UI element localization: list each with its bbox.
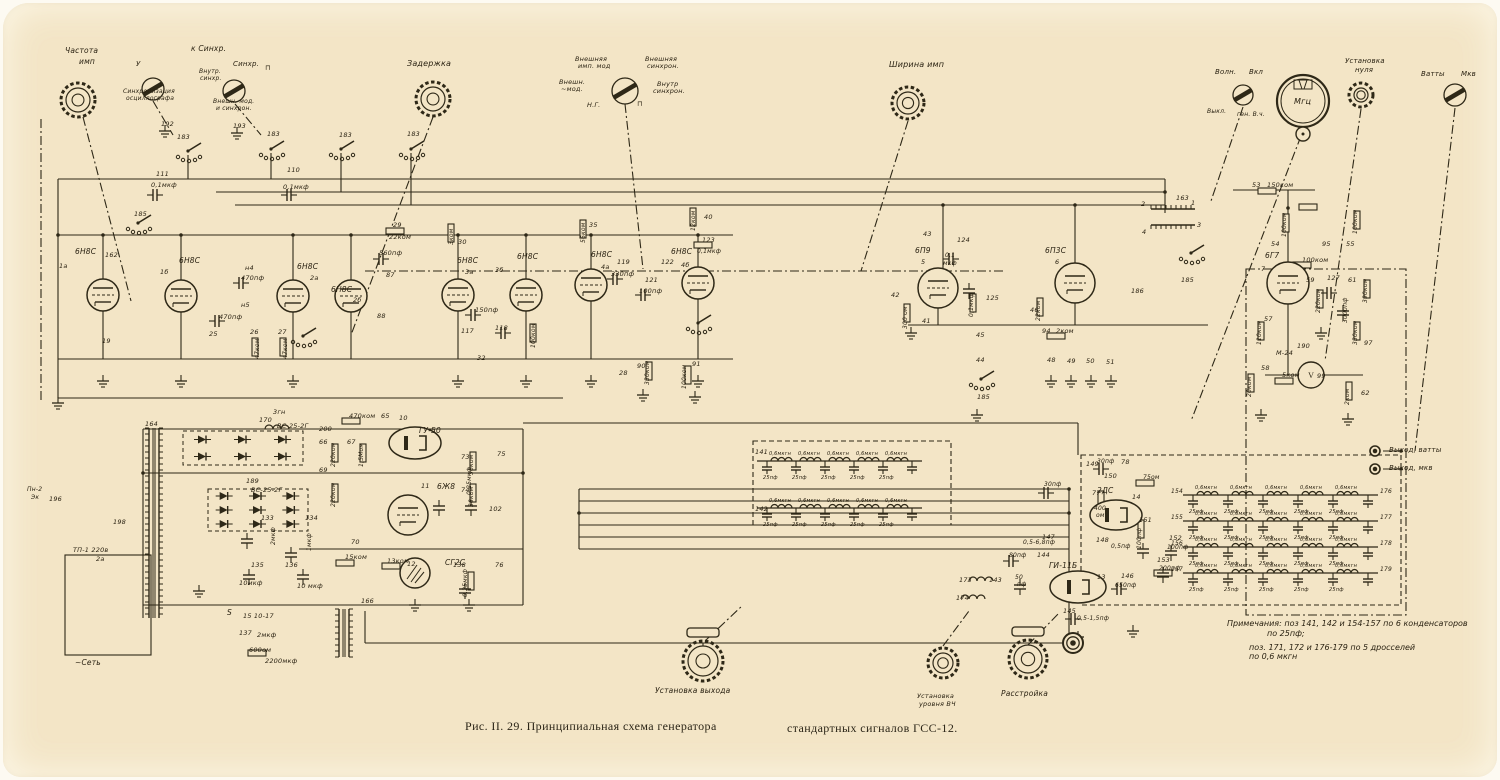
output-set-knob [683,628,723,681]
schematic-figure: V 0,6мкгн0,6мкгн0,6мкгн0,6мкгн0,6мкгн25п… [3,3,1497,777]
output-connector [1063,633,1083,653]
rf-level-knob [928,648,958,678]
notes-line-4: по 0,6 мкгн [1249,652,1297,661]
mkv-output-terminal [1370,464,1380,474]
svg-text:V: V [1308,371,1314,380]
mod-selector-switch [612,78,638,104]
notes-line-2: по 25пф; [1267,629,1305,638]
osc-sync-switch [142,78,164,100]
delay-knob [416,82,450,116]
pulse-width-knob [892,87,924,119]
wave-on-switch [1233,85,1253,105]
freq-knob [61,83,95,117]
zero-set-knob [1349,83,1373,107]
detune-knob [1009,627,1047,678]
watts-mkv-switch [1444,84,1466,106]
mhz-dial [1277,75,1329,141]
ext-mod-sync-switch [223,80,245,102]
figure-caption-right: стандартных сигналов ГСС-12. [787,721,958,736]
schematic-canvas: V [3,3,1500,780]
watts-output-terminal [1370,446,1380,456]
notes-line-1: Примечания: поз 141, 142 и 154-157 по 6 … [1227,619,1468,628]
notes-line-3: поз. 171, 172 и 176-179 по 5 дросселей [1249,643,1415,652]
screenshot: V 0,6мкгн0,6мкгн0,6мкгн0,6мкгн0,6мкгн25п… [0,0,1500,780]
figure-caption-left: Рис. II. 29. Принципиальная схема генера… [465,719,717,734]
